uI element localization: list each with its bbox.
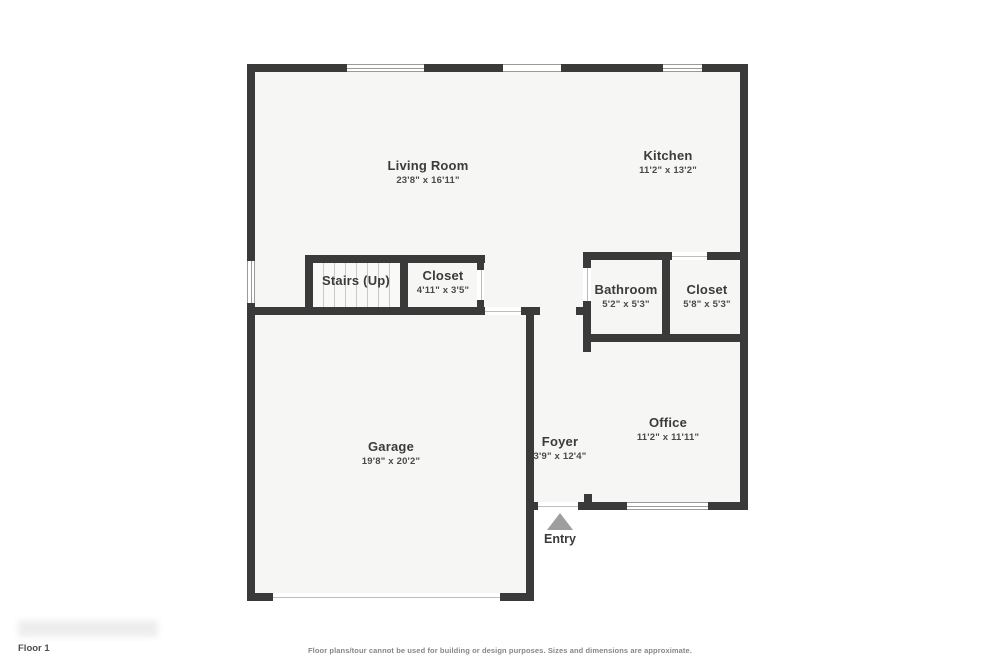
wall-right (740, 64, 748, 510)
room-dims-closet-bath: 5'8" x 5'3" (683, 299, 730, 310)
room-label-office: Office 11'2" x 11'11" (637, 415, 699, 443)
garage-interior-door-opening (485, 307, 521, 315)
room-label-foyer: Foyer 3'9" x 12'4" (534, 434, 587, 462)
room-label-garage: Garage 19'8" x 20'2" (362, 439, 420, 467)
wall-bottom-office-1 (578, 502, 627, 510)
wall-stairs-closet-divider (400, 255, 408, 315)
window-top-right-icon (663, 64, 702, 72)
wall-entry-jamb-stub (584, 494, 592, 502)
disclaimer-text: Floor plans/tour cannot be used for buil… (0, 646, 1000, 655)
room-dims-garage: 19'8" x 20'2" (362, 456, 420, 467)
wall-stairs-top (305, 255, 485, 263)
window-office-icon (627, 502, 708, 510)
room-label-stairs: Stairs (Up) (322, 273, 390, 289)
room-dims-office: 11'2" x 11'11" (637, 432, 699, 443)
wall-bath-bottom (583, 334, 748, 342)
room-name-office: Office (637, 415, 699, 431)
wall-bath-top-2 (707, 252, 748, 260)
entry-arrow-icon (547, 513, 573, 530)
closet-hall-door-opening (477, 270, 484, 300)
room-label-bathroom: Bathroom 5'2" x 5'3" (595, 282, 658, 310)
room-dims-bathroom: 5'2" x 5'3" (595, 299, 658, 310)
room-name-closet-bath: Closet (683, 282, 730, 298)
room-name-garage: Garage (362, 439, 420, 455)
wall-bath-left-lower (583, 301, 591, 352)
room-dims-kitchen: 11'2" x 13'2" (639, 165, 697, 176)
room-dims-closet-hall: 4'11" x 3'5" (417, 285, 469, 296)
room-label-kitchen: Kitchen 11'2" x 13'2" (639, 148, 697, 176)
wall-top-1 (247, 64, 347, 72)
blurred-watermark (18, 620, 158, 637)
room-name-stairs: Stairs (Up) (322, 273, 390, 289)
garage-door-opening (273, 593, 500, 601)
room-dims-living-room: 23'8" x 16'11" (388, 175, 469, 186)
floorplan-canvas: Living Room 23'8" x 16'11" Kitchen 11'2"… (0, 0, 1000, 667)
entry-label: Entry (544, 532, 576, 546)
bathroom-door-opening (583, 268, 591, 301)
wall-bath-left-upper (583, 252, 591, 268)
room-name-bathroom: Bathroom (595, 282, 658, 298)
window-top-middle-icon (503, 64, 561, 72)
room-label-closet-bath: Closet 5'8" x 5'3" (683, 282, 730, 310)
wall-mid-horizontal (247, 307, 485, 315)
wall-bath-left-stub (576, 307, 583, 315)
wall-closet-right-upper (477, 255, 484, 270)
room-name-living-room: Living Room (388, 158, 469, 174)
room-name-kitchen: Kitchen (639, 148, 697, 164)
wall-bottom-office-2 (708, 502, 748, 510)
window-left-icon (247, 261, 255, 303)
wall-bath-top-1 (583, 252, 672, 260)
wall-top-2 (424, 64, 503, 72)
entry-door-opening (538, 502, 578, 510)
wall-left-lower (247, 303, 255, 601)
room-name-foyer: Foyer (534, 434, 587, 450)
wall-left-upper (247, 64, 255, 261)
window-top-left-icon (347, 64, 424, 72)
room-name-closet-hall: Closet (417, 268, 469, 284)
wall-stairs-left (305, 255, 313, 315)
wall-bath-closet-divider (662, 260, 670, 334)
wall-garage-bottom-left (247, 593, 273, 601)
room-label-closet-hall: Closet 4'11" x 3'5" (417, 268, 469, 296)
room-dims-foyer: 3'9" x 12'4" (534, 451, 587, 462)
wall-top-3 (561, 64, 663, 72)
room-label-living-room: Living Room 23'8" x 16'11" (388, 158, 469, 186)
closet-bath-door-opening (672, 252, 707, 260)
